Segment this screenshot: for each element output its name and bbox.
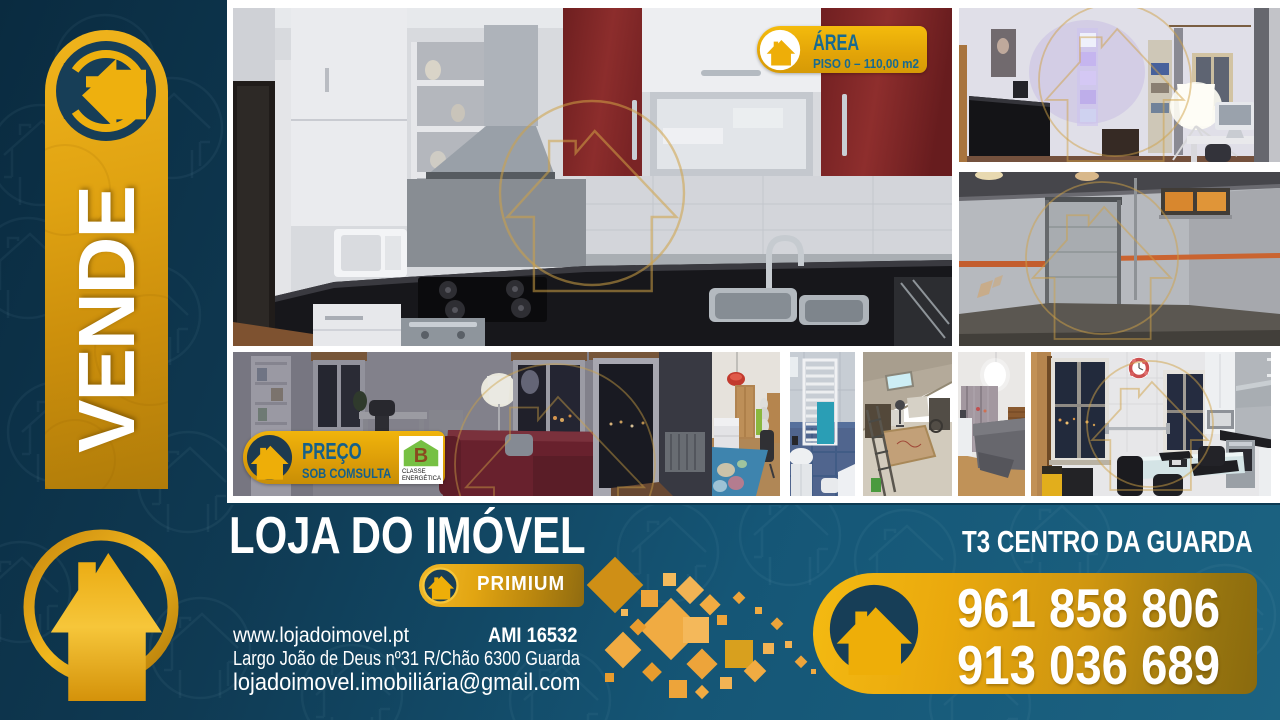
svg-text:B: B: [414, 445, 428, 467]
